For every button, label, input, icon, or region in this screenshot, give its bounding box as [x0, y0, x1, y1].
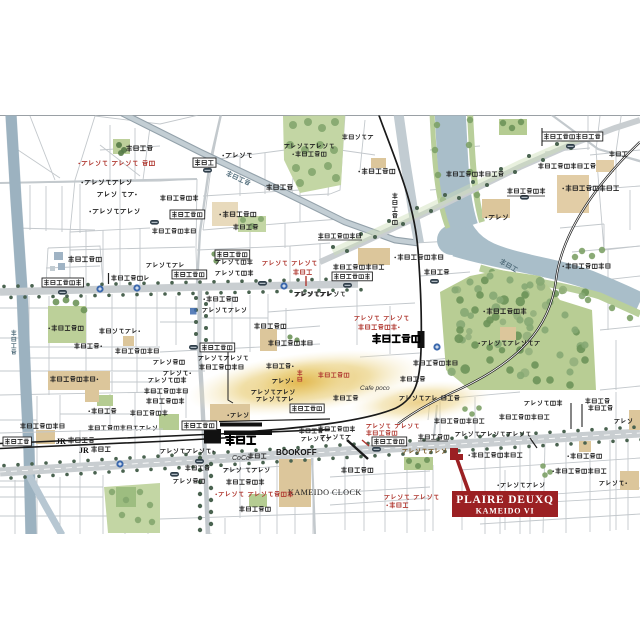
svg-text:JR: JR	[79, 446, 89, 455]
svg-text:Cafe poco: Cafe poco	[360, 385, 390, 392]
svg-text:KAMEIDO VI: KAMEIDO VI	[476, 507, 535, 516]
svg-text:BOOKOFF: BOOKOFF	[276, 448, 317, 457]
svg-text:PLAIRE DEUXQ: PLAIRE DEUXQ	[456, 494, 553, 506]
svg-text:CoCo: CoCo	[232, 455, 250, 462]
svg-text:JR: JR	[56, 437, 66, 446]
svg-text:KAMEIDO CLOCK: KAMEIDO CLOCK	[288, 488, 362, 497]
